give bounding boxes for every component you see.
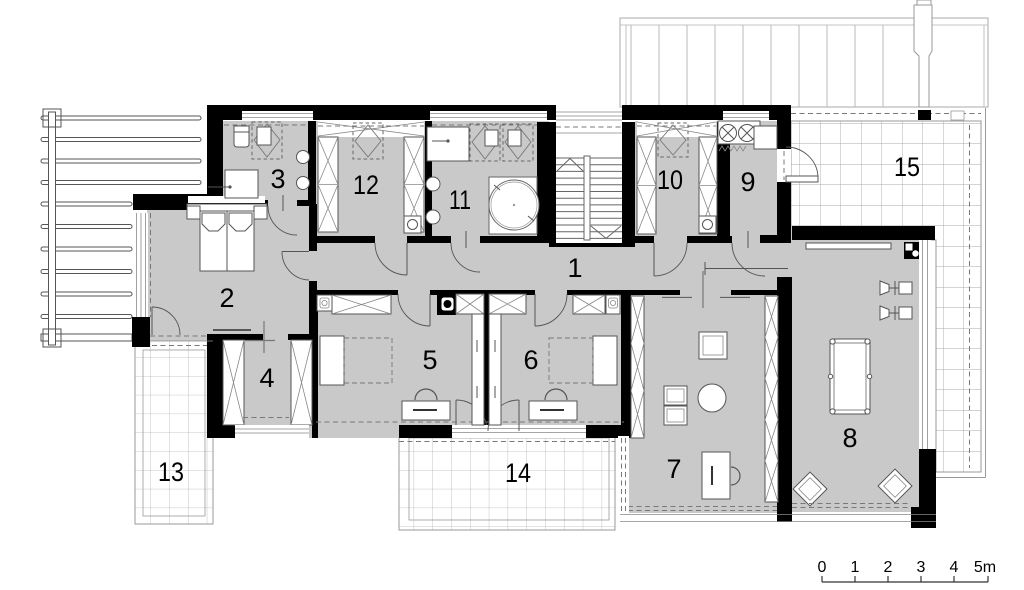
svg-text:1: 1 [851,559,860,576]
svg-text:3: 3 [917,559,926,576]
svg-text:2: 2 [219,283,234,313]
svg-text:4: 4 [950,559,959,576]
svg-text:7: 7 [666,454,681,484]
svg-text:3: 3 [270,164,285,194]
svg-text:12: 12 [353,170,379,200]
svg-text:1: 1 [567,253,582,283]
svg-text:9: 9 [740,167,755,197]
svg-text:2: 2 [884,559,893,576]
svg-text:5m: 5m [974,559,996,576]
svg-text:6: 6 [523,345,538,375]
svg-text:15: 15 [894,152,920,182]
svg-text:10: 10 [657,165,683,195]
svg-text:8: 8 [842,423,857,453]
svg-text:4: 4 [259,363,274,393]
svg-text:14: 14 [505,458,531,488]
svg-text:11: 11 [449,185,471,215]
svg-text:0: 0 [818,559,827,576]
svg-text:5: 5 [422,345,437,375]
svg-text:13: 13 [158,457,184,487]
